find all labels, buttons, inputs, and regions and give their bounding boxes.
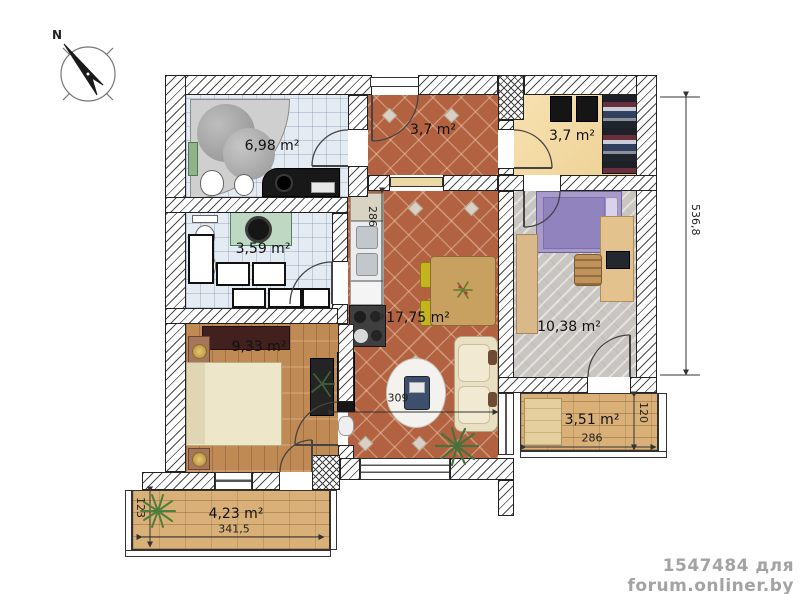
clothes-rack [602, 94, 638, 174]
toilet-tank [192, 215, 218, 223]
storage-box [232, 288, 266, 308]
wall-segment [165, 308, 338, 324]
bidet [234, 174, 254, 196]
dimension-balcony-right-width: 286 [582, 432, 603, 445]
wall-segment [165, 75, 186, 472]
window [498, 393, 514, 455]
kitchen-sink [356, 253, 378, 276]
wall-segment [560, 175, 657, 191]
wardrobe-cabinet [516, 234, 538, 334]
wall-segment [418, 75, 498, 95]
wall-segment [498, 191, 514, 393]
window [215, 472, 252, 490]
wall-segment [498, 175, 524, 191]
balcony-parapet [125, 550, 331, 557]
wall-segment [368, 175, 390, 191]
media-stand [338, 416, 354, 436]
wall-segment [168, 75, 372, 95]
dimension-balcony-right-depth: 120 [637, 402, 650, 423]
storage-box [302, 288, 330, 308]
wall-segment [498, 168, 514, 175]
wall-segment [348, 95, 368, 130]
sofa-cushion [458, 386, 490, 424]
wall-segment [348, 166, 368, 197]
tv-media-unit [310, 358, 334, 416]
compass-north-label: N [52, 28, 62, 42]
burner [370, 311, 381, 322]
wall-segment [498, 377, 588, 393]
dimension-balcony-bottom-depth: 123 [134, 497, 147, 518]
dimension-living-width: 309 [388, 392, 409, 405]
balcony-cabinet [524, 398, 562, 446]
storage-box [268, 288, 302, 308]
bed-blanket [543, 197, 605, 249]
sofa-headrest [488, 392, 497, 407]
wall-segment [338, 324, 354, 402]
table-lamp [192, 344, 207, 359]
window [360, 458, 450, 480]
washer-door [245, 216, 272, 243]
burner [354, 329, 368, 343]
laptop [606, 251, 630, 269]
sofa [454, 336, 498, 432]
storage-box [252, 262, 286, 286]
kitchen-counter [350, 281, 384, 305]
floor-plan-image: N 6,98 m² 3,7 m² 3,7 m² 3,59 m² 17,75 m²… [0, 0, 800, 594]
kitchen-counter [350, 221, 384, 281]
room-label-balcony-right: 3,51 m² [565, 412, 620, 428]
sofa-cushion [458, 344, 490, 382]
counter-tray [311, 182, 335, 193]
storage-box [216, 262, 250, 286]
room-label-bathroom: 6,98 m² [245, 138, 300, 154]
wall-segment [165, 197, 348, 213]
stove [349, 305, 386, 347]
kitchen-sink [356, 226, 378, 249]
nightstand [188, 448, 210, 470]
wall-segment [498, 480, 514, 516]
column [312, 455, 340, 490]
dimension-kitchen-height: 286 [366, 206, 379, 227]
wall-segment [636, 75, 657, 393]
room-label-wc: 3,59 m² [236, 241, 291, 257]
wall-segment [142, 472, 215, 490]
door-sill [390, 177, 443, 187]
toilet [200, 170, 224, 196]
dimension-total-height: 536,8 [689, 204, 702, 236]
sofa-headrest [488, 350, 497, 365]
room-label-wardrobe: 3,7 m² [549, 128, 595, 144]
wall-segment [630, 377, 657, 393]
storage-box [188, 234, 214, 284]
wall-segment [340, 458, 360, 480]
table-lamp [192, 452, 207, 467]
balcony-parapet [125, 490, 132, 556]
wall-segment [252, 472, 280, 490]
wall-segment [450, 458, 514, 480]
column [498, 75, 524, 120]
sink-basin [275, 174, 293, 192]
watermark-text: 1547484 для forum.onliner.by [520, 556, 794, 594]
vanity-sink [262, 168, 340, 197]
room-label-balcony-bottom: 4,23 m² [209, 506, 264, 522]
room-label-bedroom-right: 10,38 m² [537, 319, 601, 335]
single-bed [186, 362, 282, 446]
storage-chest [576, 96, 598, 122]
bath-shelf [188, 142, 198, 176]
compass-icon [61, 44, 115, 101]
room-label-bedroom-left: 9,33 m² [232, 339, 287, 355]
bed-fold [187, 363, 205, 444]
burner [354, 311, 366, 323]
wall-segment [443, 175, 498, 191]
balcony-parapet [520, 451, 667, 458]
dimension-balcony-bottom-width: 341,5 [218, 523, 250, 536]
desk-chair [574, 254, 602, 286]
wall-segment [498, 120, 514, 130]
balcony-parapet [658, 393, 667, 458]
entrance-threshold [370, 77, 420, 87]
magazine [409, 382, 425, 393]
burner [371, 330, 382, 341]
storage-chest [550, 96, 572, 122]
room-label-kitchen-living: 17,75 m² [386, 310, 450, 326]
wall-segment [332, 213, 348, 262]
room-label-hallway: 3,7 m² [410, 122, 456, 138]
balcony-parapet [330, 490, 337, 550]
desk [600, 216, 634, 302]
